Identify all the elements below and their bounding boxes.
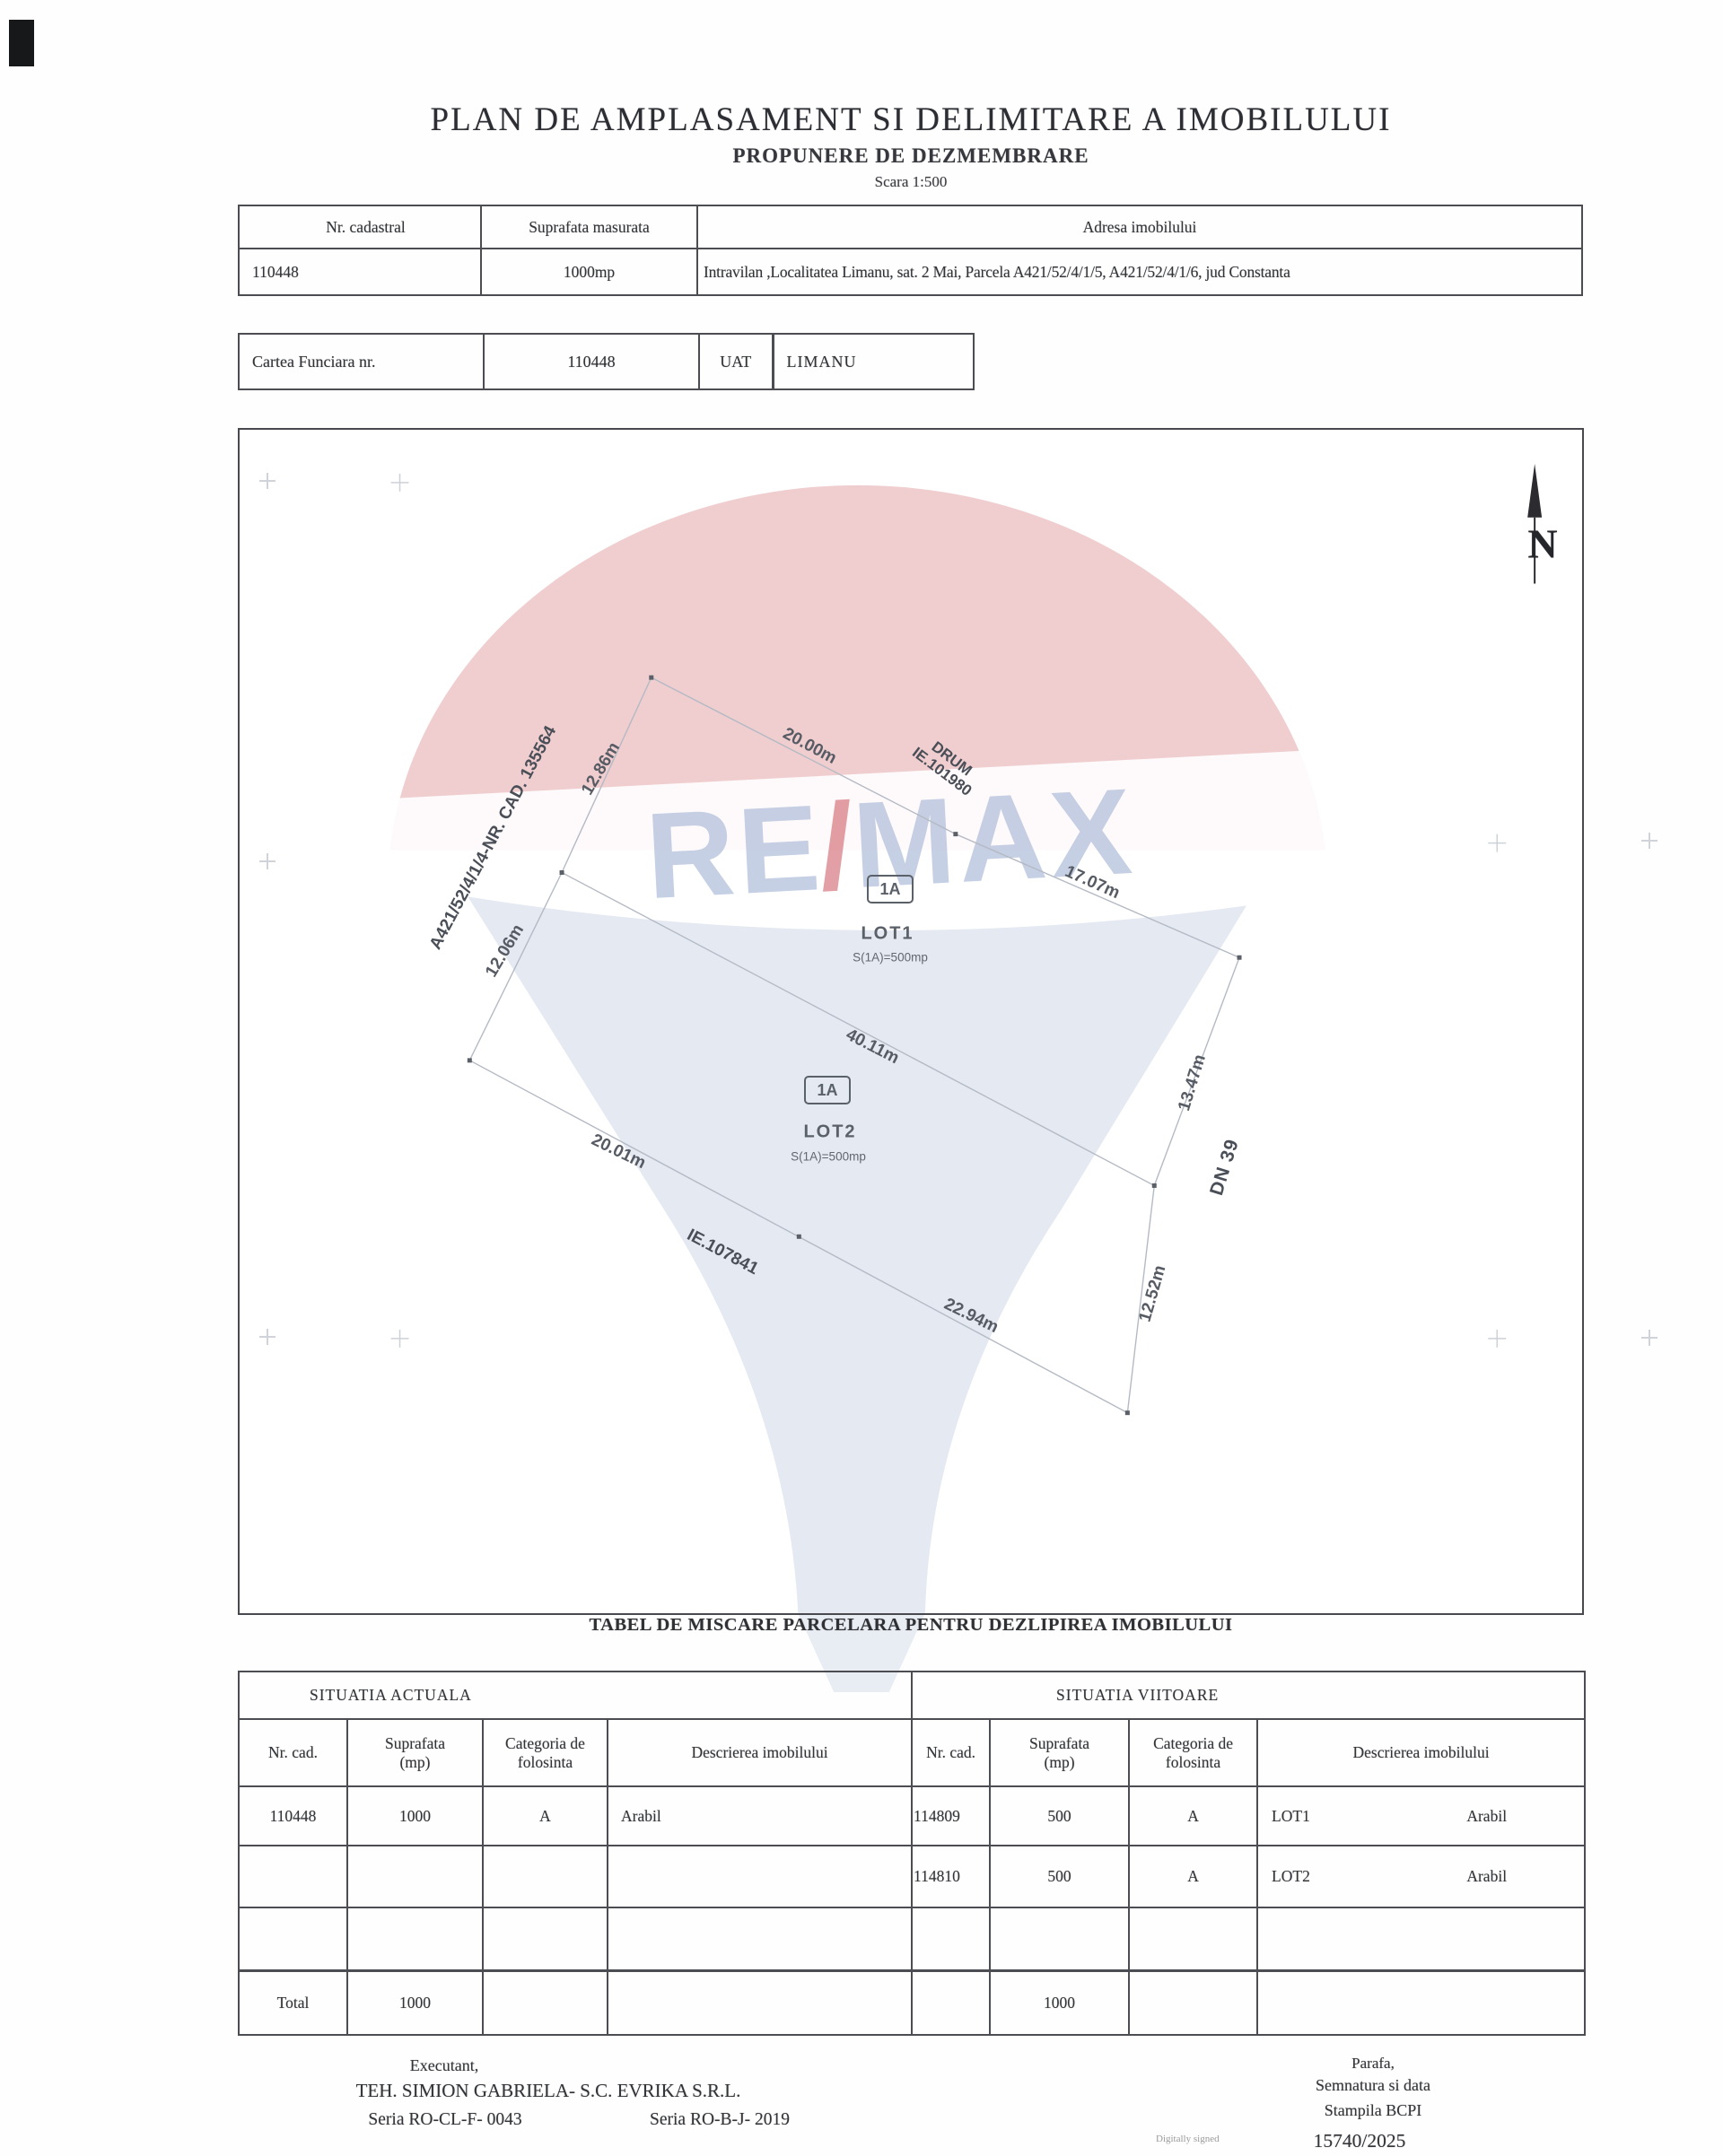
col-header-nr-cadastral: Nr. cadastral [239, 205, 481, 249]
col-header-suprafata: Suprafata masurata [481, 205, 697, 249]
col-old-suprafata: Suprafata (mp) [347, 1719, 483, 1786]
old-cad: 110448 [239, 1786, 347, 1846]
lot1-area: S(1A)=500mp [853, 951, 928, 965]
digital-signature-note: Digitally signed [1156, 2134, 1255, 2144]
old-cad [239, 1846, 347, 1907]
north-label: N [1527, 520, 1557, 568]
new-lot-name: LOT1 [1272, 1807, 1310, 1826]
parafa-label: Parafa, [1194, 2055, 1552, 2073]
executant-name: TEH. SIMION GABRIELA- S.C. EVRIKA S.R.L. [234, 2080, 862, 2102]
section-situatia-viitoare: SITUATIA VIITOARE [912, 1672, 1585, 1719]
old-cat: A [483, 1786, 608, 1846]
new-lot-type: Arabil [1466, 1807, 1507, 1826]
total-new-area: 1000 [990, 1970, 1129, 2035]
seria-2: Seria RO-B-J- 2019 [585, 2110, 854, 2130]
new-lot-type: Arabil [1466, 1867, 1507, 1886]
lot2-tag: 1A [804, 1076, 851, 1104]
new-cad: 114809 [912, 1786, 990, 1846]
table-row: 114810 500 A LOT2 Arabil [239, 1846, 1585, 1907]
old-area [347, 1846, 483, 1907]
col-new-categoria: Categoria de folosinta [1129, 1719, 1257, 1786]
stampila-label: Stampila BCPI [1194, 2101, 1552, 2120]
old-area: 1000 [347, 1786, 483, 1846]
old-cat [483, 1846, 608, 1907]
page-subtitle: PROPUNERE DE DEZMEMBRARE [238, 144, 1584, 168]
col-new-suprafata: Suprafata (mp) [990, 1719, 1129, 1786]
scanned-cadastral-document: PLAN DE AMPLASAMENT SI DELIMITARE A IMOB… [0, 0, 1723, 2156]
uat-value: LIMANU [773, 334, 974, 389]
table-row: 110448 1000 A Arabil 114809 500 A LOT1 A… [239, 1786, 1585, 1846]
col-new-descriere: Descrierea imobilului [1257, 1719, 1585, 1786]
table-row [239, 1907, 1585, 1970]
new-cat: A [1129, 1846, 1257, 1907]
parcel-boundary-lines [240, 430, 1582, 1613]
parcel-movement-table: SITUATIA ACTUALA SITUATIA VIITOARE Nr. c… [238, 1671, 1586, 2036]
parcel-info-table: Nr. cadastral Suprafata masurata Adresa … [238, 205, 1583, 296]
cell-nr-cadastral: 110448 [239, 249, 481, 295]
lot2-name: LOT2 [803, 1122, 856, 1143]
movement-table-title: TABEL DE MISCARE PARCELARA PENTRU DEZLIP… [238, 1615, 1584, 1636]
lot1-name: LOT1 [861, 924, 914, 945]
lot1-tag: 1A [867, 875, 914, 903]
col-old-nr-cad: Nr. cad. [239, 1719, 347, 1786]
new-area: 500 [990, 1846, 1129, 1907]
new-desc: LOT2 Arabil [1257, 1846, 1585, 1907]
col-old-descriere: Descrierea imobilului [608, 1719, 912, 1786]
cf-numar: 110448 [484, 334, 699, 389]
new-cad: 114810 [912, 1846, 990, 1907]
scan-artifact-bar [9, 20, 34, 66]
new-cat: A [1129, 1786, 1257, 1846]
semnatura-label: Semnatura si data [1194, 2076, 1552, 2095]
page-title: PLAN DE AMPLASAMENT SI DELIMITARE A IMOB… [238, 100, 1584, 139]
registration-mark [1641, 833, 1657, 849]
total-label: Total [239, 1970, 347, 2035]
cell-adresa: Intravilan ,Localitatea Limanu, sat. 2 M… [697, 249, 1582, 295]
col-header-adresa: Adresa imobilului [697, 205, 1582, 249]
cf-label: Cartea Funciara nr. [239, 334, 484, 389]
registration-crosses [391, 474, 1507, 1348]
new-lot-name: LOT2 [1272, 1867, 1310, 1886]
site-plan-drawing: RE/MAX [238, 428, 1584, 1615]
new-desc: LOT1 Arabil [1257, 1786, 1585, 1846]
registration-mark [1641, 1330, 1657, 1346]
executant-label: Executant, [310, 2056, 579, 2075]
col-old-categoria: Categoria de folosinta [483, 1719, 608, 1786]
col-new-nr-cad: Nr. cad. [912, 1719, 990, 1786]
total-old-area: 1000 [347, 1970, 483, 2035]
old-desc [608, 1846, 912, 1907]
lot2-area: S(1A)=500mp [791, 1150, 866, 1164]
section-situatia-actuala: SITUATIA ACTUALA [239, 1672, 912, 1719]
cartea-funciara-table: Cartea Funciara nr. 110448 UAT LIMANU [238, 333, 975, 390]
total-row: Total 1000 1000 [239, 1970, 1585, 2035]
uat-label: UAT [699, 334, 773, 389]
map-scale-label: Scara 1:500 [238, 173, 1584, 191]
cell-suprafata: 1000mp [481, 249, 697, 295]
old-desc: Arabil [608, 1786, 912, 1846]
new-area: 500 [990, 1786, 1129, 1846]
seria-1: Seria RO-CL-F- 0043 [310, 2110, 580, 2130]
